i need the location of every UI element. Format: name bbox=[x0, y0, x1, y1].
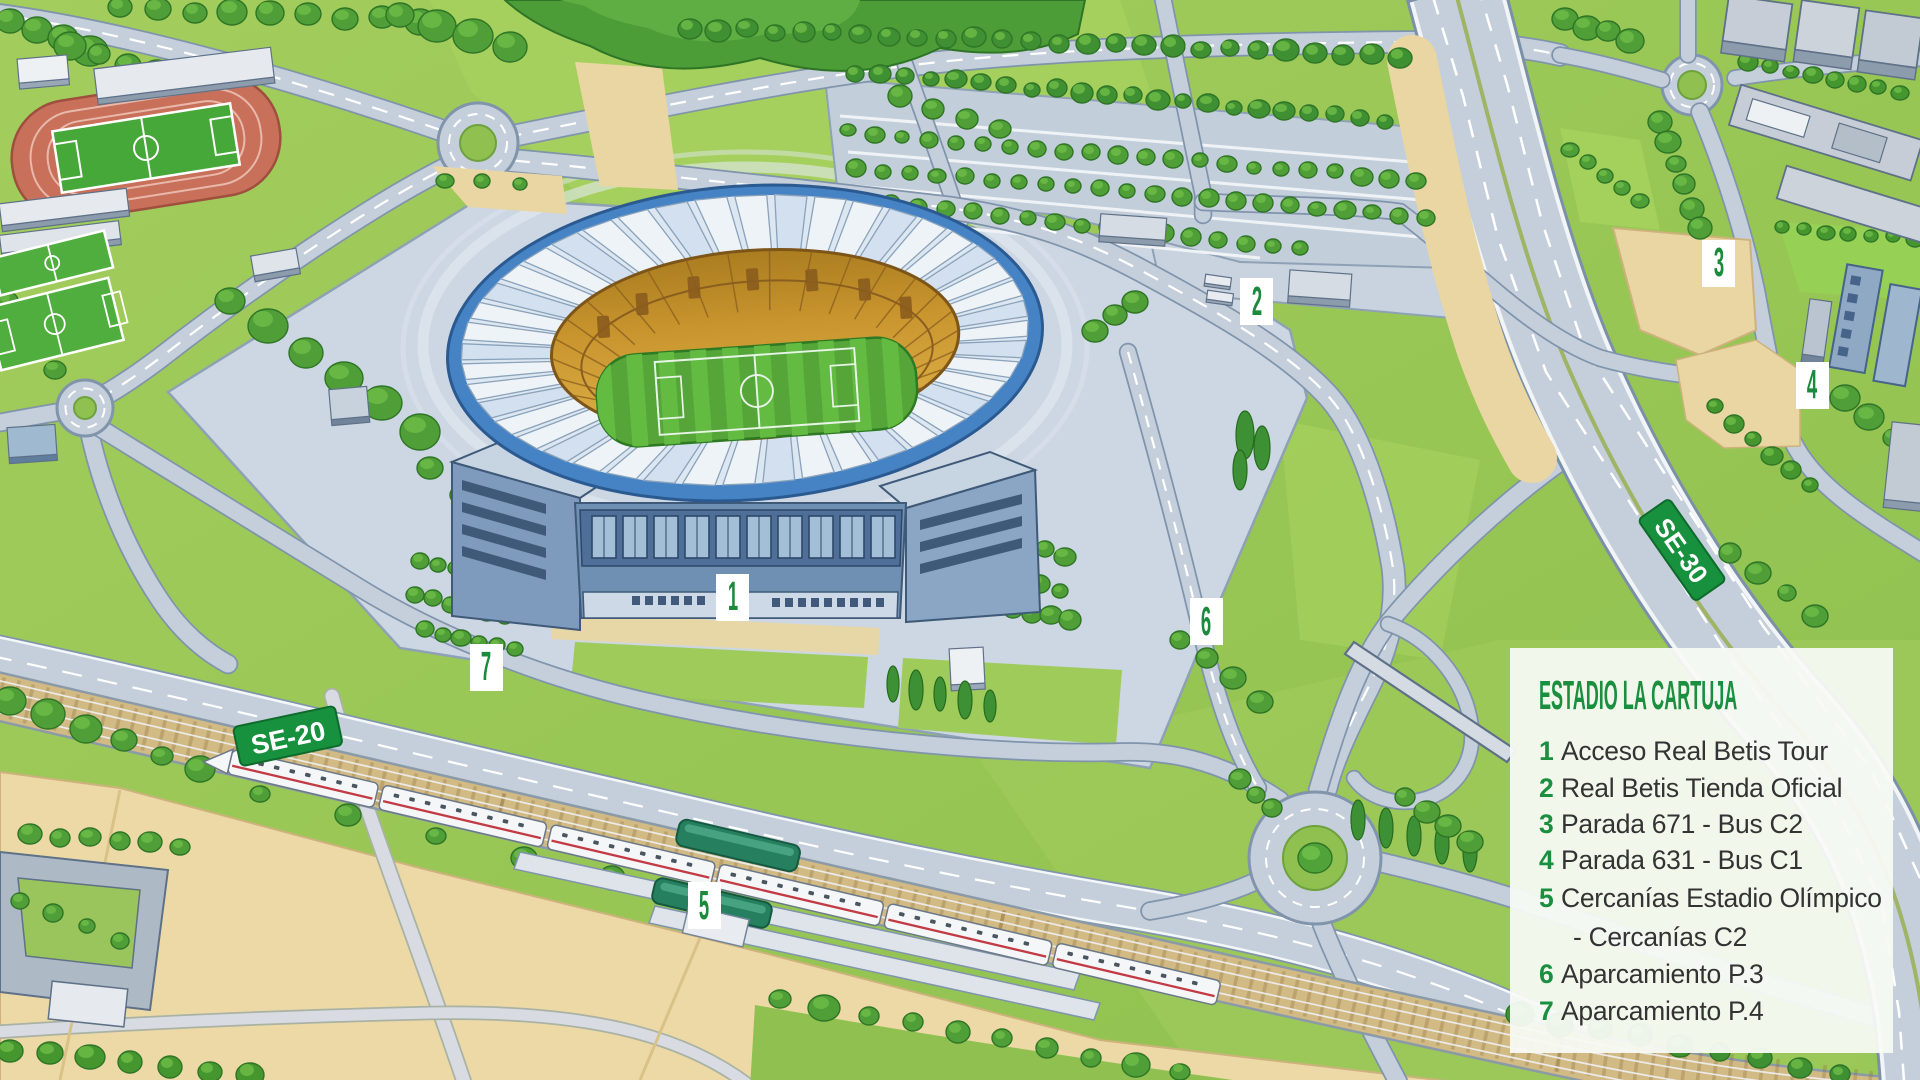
svg-text:7: 7 bbox=[1539, 996, 1553, 1026]
svg-text:5: 5 bbox=[699, 882, 709, 928]
svg-text:5: 5 bbox=[1539, 883, 1553, 913]
svg-text:Aparcamiento P.3: Aparcamiento P.3 bbox=[1561, 959, 1763, 989]
svg-text:2: 2 bbox=[1252, 278, 1262, 324]
svg-text:3: 3 bbox=[1539, 809, 1553, 839]
svg-text:7: 7 bbox=[481, 643, 491, 689]
svg-text:- Cercanías C2: - Cercanías C2 bbox=[1573, 922, 1747, 952]
svg-text:Real Betis Tienda Oficial: Real Betis Tienda Oficial bbox=[1561, 773, 1842, 803]
svg-text:Acceso Real Betis Tour: Acceso Real Betis Tour bbox=[1561, 736, 1828, 766]
svg-text:6: 6 bbox=[1201, 598, 1211, 644]
svg-text:ESTADIO LA CARTUJA: ESTADIO LA CARTUJA bbox=[1539, 671, 1737, 718]
svg-text:Cercanías Estadio Olímpico: Cercanías Estadio Olímpico bbox=[1561, 883, 1882, 913]
svg-text:Aparcamiento P.4: Aparcamiento P.4 bbox=[1561, 996, 1763, 1026]
svg-text:4: 4 bbox=[1539, 845, 1554, 875]
svg-text:2: 2 bbox=[1539, 773, 1553, 803]
svg-text:Parada 631 - Bus C1: Parada 631 - Bus C1 bbox=[1561, 845, 1803, 875]
svg-text:Parada 671 - Bus C2: Parada 671 - Bus C2 bbox=[1561, 809, 1803, 839]
svg-text:4: 4 bbox=[1807, 361, 1817, 407]
svg-text:6: 6 bbox=[1539, 959, 1553, 989]
svg-text:1: 1 bbox=[728, 573, 738, 619]
svg-text:1: 1 bbox=[1539, 736, 1553, 766]
svg-text:3: 3 bbox=[1714, 239, 1724, 285]
